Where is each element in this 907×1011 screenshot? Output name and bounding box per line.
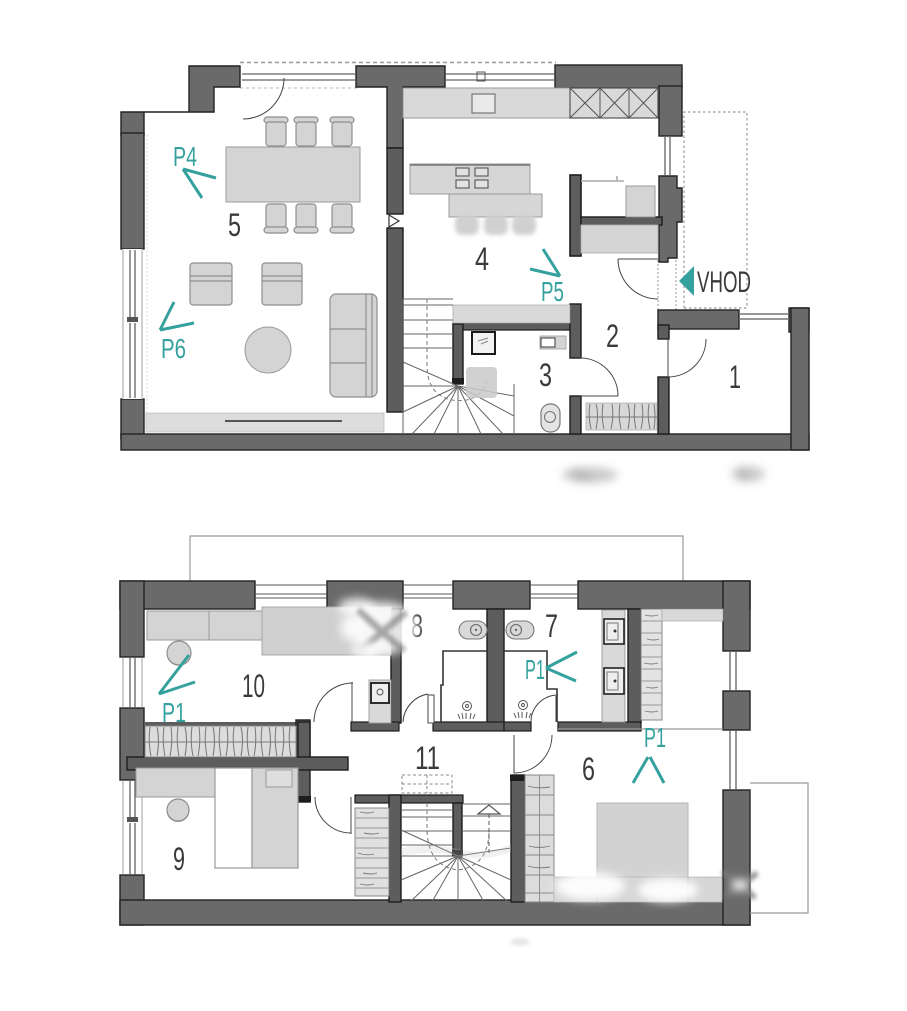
svg-text:2: 2 xyxy=(606,318,619,354)
svg-text:3: 3 xyxy=(539,357,552,393)
svg-text:P5: P5 xyxy=(541,276,564,307)
svg-text:1: 1 xyxy=(729,359,741,395)
svg-text:6: 6 xyxy=(582,751,595,787)
svg-text:VHOD: VHOD xyxy=(697,266,751,299)
svg-text:9: 9 xyxy=(173,841,185,877)
svg-text:P4: P4 xyxy=(173,141,197,172)
svg-text:11: 11 xyxy=(415,740,440,776)
svg-text:P6: P6 xyxy=(161,333,186,364)
svg-text:P1: P1 xyxy=(525,654,545,685)
svg-text:4: 4 xyxy=(475,241,489,277)
svg-text:P1: P1 xyxy=(162,697,186,728)
svg-text:P1: P1 xyxy=(644,722,666,753)
svg-text:10: 10 xyxy=(242,668,265,704)
svg-text:7: 7 xyxy=(545,608,558,644)
svg-text:5: 5 xyxy=(228,207,241,243)
